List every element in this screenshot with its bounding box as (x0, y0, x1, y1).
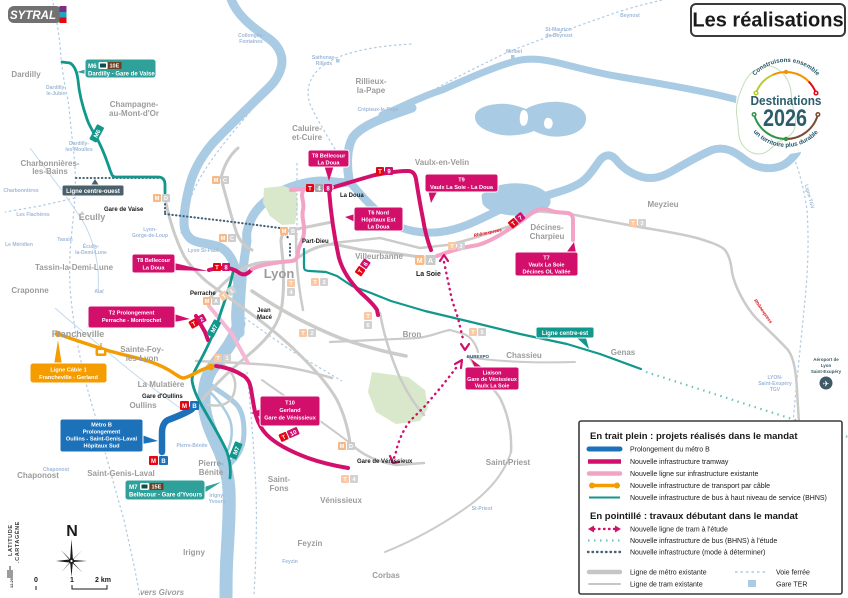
svg-text:Feyzin: Feyzin (282, 559, 298, 565)
svg-text:Fontaines: Fontaines (239, 39, 263, 45)
svg-text:Les Flachères: Les Flachères (16, 212, 50, 218)
svg-text:A: A (214, 299, 218, 305)
svg-text:M: M (205, 299, 210, 305)
svg-text:Le Méridien: Le Méridien (5, 242, 33, 248)
svg-text:M: M (155, 196, 160, 202)
svg-text:En trait plein : projets réali: En trait plein : projets réalisés dans l… (590, 431, 798, 442)
svg-text:3: 3 (322, 280, 325, 286)
svg-text:Décines-: Décines- (530, 223, 564, 232)
svg-text:le-Jubin: le-Jubin (46, 91, 65, 97)
svg-text:M: M (151, 459, 156, 465)
svg-text:Vaulx La Soie: Vaulx La Soie (528, 263, 564, 269)
svg-text:Aéroport de: Aéroport de (813, 357, 839, 362)
svg-text:Hôpitaux Est: Hôpitaux Est (361, 218, 395, 224)
svg-text:Alaï: Alaï (94, 289, 104, 295)
svg-text:La Mulatière: La Mulatière (138, 380, 185, 389)
svg-text:M: M (221, 236, 226, 242)
svg-text:Gare de Vaise: Gare de Vaise (104, 207, 144, 213)
svg-text:Yvours: Yvours (209, 499, 226, 505)
svg-text:T6 Nord: T6 Nord (368, 211, 390, 217)
svg-text:M: M (214, 178, 219, 184)
svg-text:et-Cuire: et-Cuire (292, 133, 323, 142)
svg-text:Les réalisations: Les réalisations (692, 10, 843, 32)
svg-text:Gorge-de-Loup: Gorge-de-Loup (132, 233, 168, 239)
svg-text:Jean: Jean (257, 308, 271, 314)
svg-text:Oullins - Saint-Genis-Laval: Oullins - Saint-Genis-Laval (66, 437, 138, 443)
svg-text:Gerland: Gerland (279, 408, 301, 414)
svg-text:lès-Lyon: lès-Lyon (126, 354, 159, 363)
svg-text:Saint-Exupéry: Saint-Exupéry (811, 369, 842, 374)
svg-text:Meyzieu: Meyzieu (647, 200, 678, 209)
svg-text:Vénissieux: Vénissieux (320, 496, 362, 505)
svg-text:LATITUDE: LATITUDE (8, 524, 14, 556)
svg-text:Tassin-la-Demi-Lune: Tassin-la-Demi-Lune (35, 263, 114, 272)
svg-text:Ligne de métro existante: Ligne de métro existante (630, 570, 707, 577)
svg-text:Crépieux-la-Pape: Crépieux-la-Pape (358, 107, 399, 113)
svg-text:B: B (192, 404, 197, 410)
svg-text:Ligne de tram existante: Ligne de tram existante (630, 582, 703, 589)
svg-text:La Doua: La Doua (317, 161, 340, 167)
svg-text:Vaulx La Soie: Vaulx La Soie (475, 384, 510, 390)
svg-text:B: B (161, 459, 166, 465)
svg-text:B: B (291, 229, 295, 235)
svg-text:Lyon: Lyon (264, 266, 295, 281)
svg-text:Dardilly: Dardilly (11, 70, 41, 79)
svg-text:Nouvelle infrastructure de tra: Nouvelle infrastructure de transport par… (630, 483, 770, 490)
svg-text:M: M (282, 229, 287, 235)
svg-text:T7: T7 (543, 256, 550, 262)
svg-text:Gare de Vénissieux: Gare de Vénissieux (264, 416, 317, 422)
svg-text:6: 6 (366, 323, 369, 329)
svg-text:1: 1 (70, 577, 74, 584)
svg-text:les-Bains: les-Bains (32, 167, 68, 176)
svg-text:Fons: Fons (269, 484, 289, 493)
svg-text:EUREXPO: EUREXPO (467, 354, 490, 359)
svg-text:Part-Dieu: Part-Dieu (302, 239, 329, 245)
svg-text:Gare de Vénissieux: Gare de Vénissieux (467, 377, 517, 383)
svg-text:Nouvelle infrastructure tramwa: Nouvelle infrastructure tramway (630, 459, 729, 466)
svg-text:12.20: 12.20 (9, 577, 14, 588)
svg-text:M6: M6 (88, 63, 97, 70)
svg-text:Voie ferrée: Voie ferrée (776, 570, 810, 577)
svg-text:2026: 2026 (763, 105, 807, 132)
svg-text:Lyon St-Paul: Lyon St-Paul (188, 248, 219, 254)
svg-text:5: 5 (480, 330, 483, 336)
svg-text:Rillieux-: Rillieux- (355, 77, 386, 86)
svg-text:T10: T10 (285, 401, 295, 407)
svg-text:Décines OL Vallée: Décines OL Vallée (522, 270, 570, 276)
svg-text:Prolongement: Prolongement (83, 430, 121, 436)
svg-text:Beynost: Beynost (620, 13, 640, 19)
svg-text:T: T (308, 186, 312, 192)
svg-text:Gare d'Oullins: Gare d'Oullins (142, 394, 183, 400)
svg-text:Nouvelle ligne sur infrastruct: Nouvelle ligne sur infrastructure exista… (630, 471, 759, 478)
svg-text:Lyon: Lyon (821, 363, 832, 368)
svg-text:Gare TER: Gare TER (776, 582, 807, 589)
svg-text:Rilleux: Rilleux (316, 61, 333, 67)
svg-text:Saint-Genis-Laval: Saint-Genis-Laval (87, 469, 155, 478)
svg-text:Nouvelle infrastructure de bus: Nouvelle infrastructure de bus (BHNS) à … (630, 538, 777, 545)
svg-text:les-Moulles: les-Moulles (65, 147, 92, 153)
svg-text:Vaulx La Soie - La Doua: Vaulx La Soie - La Doua (430, 185, 494, 191)
svg-text:Feyzin: Feyzin (298, 539, 323, 548)
svg-text:M: M (417, 258, 423, 265)
svg-text:Caluire-: Caluire- (292, 124, 322, 133)
svg-text:✈: ✈ (823, 380, 830, 389)
svg-text:0: 0 (34, 577, 38, 584)
svg-text:Tassin: Tassin (57, 237, 72, 243)
svg-text:Craponne: Craponne (11, 286, 49, 295)
svg-text:Métro B: Métro B (91, 423, 112, 429)
svg-text:Prolongement du métro B: Prolongement du métro B (630, 447, 710, 454)
svg-text:La Doua: La Doua (142, 266, 165, 272)
svg-text:Ligne centre-ouest: Ligne centre-ouest (66, 189, 120, 195)
svg-text:Francheville: Francheville (52, 329, 105, 339)
svg-text:T2 Prolongement: T2 Prolongement (109, 311, 155, 317)
svg-text:Bénite: Bénite (199, 468, 224, 477)
svg-text:.CARTAGÈNE: .CARTAGÈNE (13, 521, 21, 563)
svg-text:Chaponost: Chaponost (43, 467, 69, 473)
svg-text:Corbas: Corbas (372, 571, 400, 580)
svg-text:N: N (66, 523, 78, 540)
svg-text:Bellecour - Gare d'Yvours: Bellecour - Gare d'Yvours (129, 493, 203, 499)
svg-text:Pierre-: Pierre- (198, 459, 224, 468)
svg-text:M7: M7 (129, 484, 138, 491)
svg-text:Dardilly - Gare de Vaise: Dardilly - Gare de Vaise (88, 72, 155, 78)
svg-text:Chassieu: Chassieu (506, 351, 542, 360)
svg-text:Bron: Bron (403, 330, 422, 339)
svg-text:Charpieu: Charpieu (530, 232, 565, 241)
svg-text:de-Beynost: de-Beynost (545, 33, 573, 39)
svg-text:Écully-: Écully- (83, 242, 100, 250)
svg-text:TGV: TGV (770, 387, 781, 393)
svg-text:Ligne Câble 1: Ligne Câble 1 (50, 368, 86, 374)
svg-text:Irigny: Irigny (183, 548, 205, 557)
svg-text:M: M (182, 404, 187, 410)
svg-text:3: 3 (640, 221, 643, 227)
svg-text:St-Priest: St-Priest (472, 506, 493, 512)
svg-text:15E: 15E (152, 485, 162, 491)
svg-text:3: 3 (459, 244, 462, 250)
svg-text:A: A (428, 258, 433, 265)
svg-text:Écully: Écully (79, 212, 106, 222)
svg-text:Gare de Vénissieux: Gare de Vénissieux (357, 459, 413, 465)
svg-text:Saint-Priest: Saint-Priest (486, 458, 531, 467)
svg-text:Genas: Genas (611, 348, 636, 357)
svg-text:la-Pape: la-Pape (357, 86, 386, 95)
svg-text:Oullins: Oullins (129, 401, 157, 410)
svg-text:T8 Bellecour: T8 Bellecour (312, 154, 346, 160)
svg-text:Champagne-: Champagne- (110, 100, 159, 109)
svg-text:T9: T9 (458, 178, 465, 184)
svg-text:Pierre-Bénite: Pierre-Bénite (176, 443, 207, 449)
svg-text:Nouvelle ligne de tram à l'étu: Nouvelle ligne de tram à l'étude (630, 527, 728, 534)
svg-text:D: D (164, 196, 168, 202)
svg-text:2: 2 (310, 331, 313, 337)
svg-text:10E: 10E (110, 64, 120, 70)
svg-text:Perrache - Montrochet: Perrache - Montrochet (102, 318, 162, 324)
svg-text:SYTRAL: SYTRAL (10, 10, 56, 22)
svg-text:2 km: 2 km (95, 577, 111, 584)
svg-text:la-Demi-Lune: la-Demi-Lune (75, 250, 107, 256)
svg-text:T8 Bellecour: T8 Bellecour (137, 258, 171, 264)
svg-text:Perrache: Perrache (190, 291, 216, 297)
svg-text:Sainte-Foy-: Sainte-Foy- (120, 345, 164, 354)
svg-text:Saint-: Saint- (268, 475, 291, 484)
svg-text:T: T (215, 265, 219, 271)
svg-text:Hôpitaux Sud: Hôpitaux Sud (83, 444, 120, 450)
svg-text:1: 1 (225, 356, 228, 362)
svg-text:Ligne centre-est: Ligne centre-est (542, 331, 588, 337)
svg-text:M: M (340, 444, 345, 450)
svg-text:au-Mont-d'Or: au-Mont-d'Or (109, 109, 159, 118)
svg-text:Nouvelle infrastructure (mode: Nouvelle infrastructure (mode à détermin… (630, 550, 765, 557)
svg-text:Charbonnières: Charbonnières (3, 188, 39, 194)
svg-text:Vaulx-en-Velin: Vaulx-en-Velin (415, 158, 469, 167)
svg-text:Miribel: Miribel (506, 49, 523, 55)
svg-text:C: C (223, 178, 227, 184)
svg-text:La Doua: La Doua (367, 225, 390, 231)
svg-text:C: C (230, 236, 234, 242)
svg-text:T: T (378, 169, 382, 175)
svg-text:Nouvelle infrastructure de bus: Nouvelle infrastructure de bus à haut ni… (630, 495, 827, 502)
svg-text:Villeurbanne: Villeurbanne (355, 252, 403, 261)
svg-text:Macé: Macé (257, 315, 273, 321)
svg-text:vers Givors: vers Givors (140, 588, 185, 597)
svg-text:La Soie: La Soie (416, 271, 441, 278)
svg-text:En pointillé : travaux débutan: En pointillé : travaux débutant dans le … (590, 511, 799, 522)
svg-text:D: D (349, 444, 353, 450)
svg-text:Francheville - Gerland: Francheville - Gerland (39, 375, 98, 381)
svg-text:Liaison: Liaison (483, 370, 502, 376)
svg-text:La Doua: La Doua (340, 193, 364, 199)
